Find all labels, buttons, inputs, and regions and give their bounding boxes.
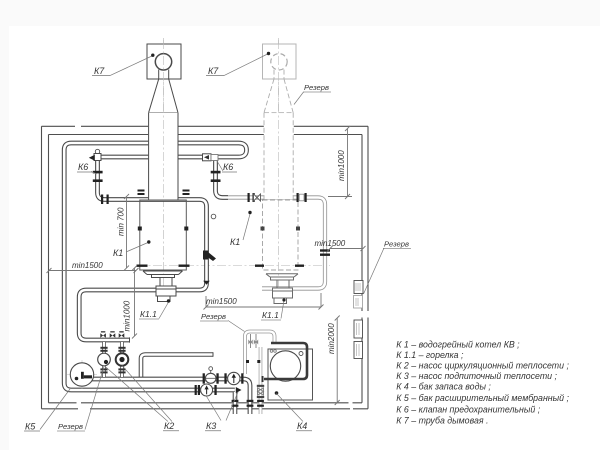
svg-text:Резерв: Резерв bbox=[384, 240, 409, 249]
svg-text:min1000: min1000 bbox=[337, 150, 346, 181]
svg-text:К4: К4 bbox=[297, 421, 307, 431]
svg-text:К 4 – бак запаса воды ;: К 4 – бак запаса воды ; bbox=[396, 382, 491, 392]
svg-text:К1: К1 bbox=[230, 237, 240, 247]
svg-text:К 3 – насос подпиточный тепл: К 3 – насос подпиточный теплосети ; bbox=[396, 371, 557, 381]
svg-text:К7: К7 bbox=[208, 66, 219, 76]
svg-text:К6: К6 bbox=[78, 162, 88, 172]
svg-text:min1500: min1500 bbox=[206, 297, 237, 306]
svg-text:К1.1: К1.1 bbox=[262, 310, 279, 320]
svg-text:Резерв: Резерв bbox=[304, 83, 329, 92]
svg-text:К 1.1 – горелка ;: К 1.1 – горелка ; bbox=[396, 350, 464, 360]
svg-text:К 6 – клапан предохранительн: К 6 – клапан предохранительный ; bbox=[396, 404, 540, 414]
svg-text:min2000: min2000 bbox=[327, 323, 336, 354]
svg-text:min 700: min 700 bbox=[117, 207, 126, 236]
svg-text:К1.1: К1.1 bbox=[140, 309, 157, 319]
svg-text:К7: К7 bbox=[94, 66, 105, 76]
svg-text:К6: К6 bbox=[223, 162, 233, 172]
svg-text:К2: К2 bbox=[164, 421, 174, 431]
svg-text:Резерв: Резерв bbox=[58, 422, 83, 431]
svg-text:К 5 – бак расширительный мем: К 5 – бак расширительный мембранный ; bbox=[396, 393, 569, 403]
svg-text:К5: К5 bbox=[25, 422, 36, 432]
svg-text:min1000: min1000 bbox=[123, 300, 132, 331]
svg-text:min1500: min1500 bbox=[315, 239, 346, 248]
svg-text:К 7 – труба дымовая .: К 7 – труба дымовая . bbox=[396, 416, 488, 426]
svg-text:К 2 – насос циркуляционный т: К 2 – насос циркуляционный теплосети ; bbox=[396, 361, 569, 371]
svg-text:min1500: min1500 bbox=[72, 261, 103, 270]
svg-text:К3: К3 bbox=[206, 421, 216, 431]
svg-text:Резерв: Резерв bbox=[201, 312, 226, 321]
svg-text:К1: К1 bbox=[113, 248, 123, 258]
svg-text:К 1 – водогрейный котел КВ ;: К 1 – водогрейный котел КВ ; bbox=[396, 339, 520, 349]
